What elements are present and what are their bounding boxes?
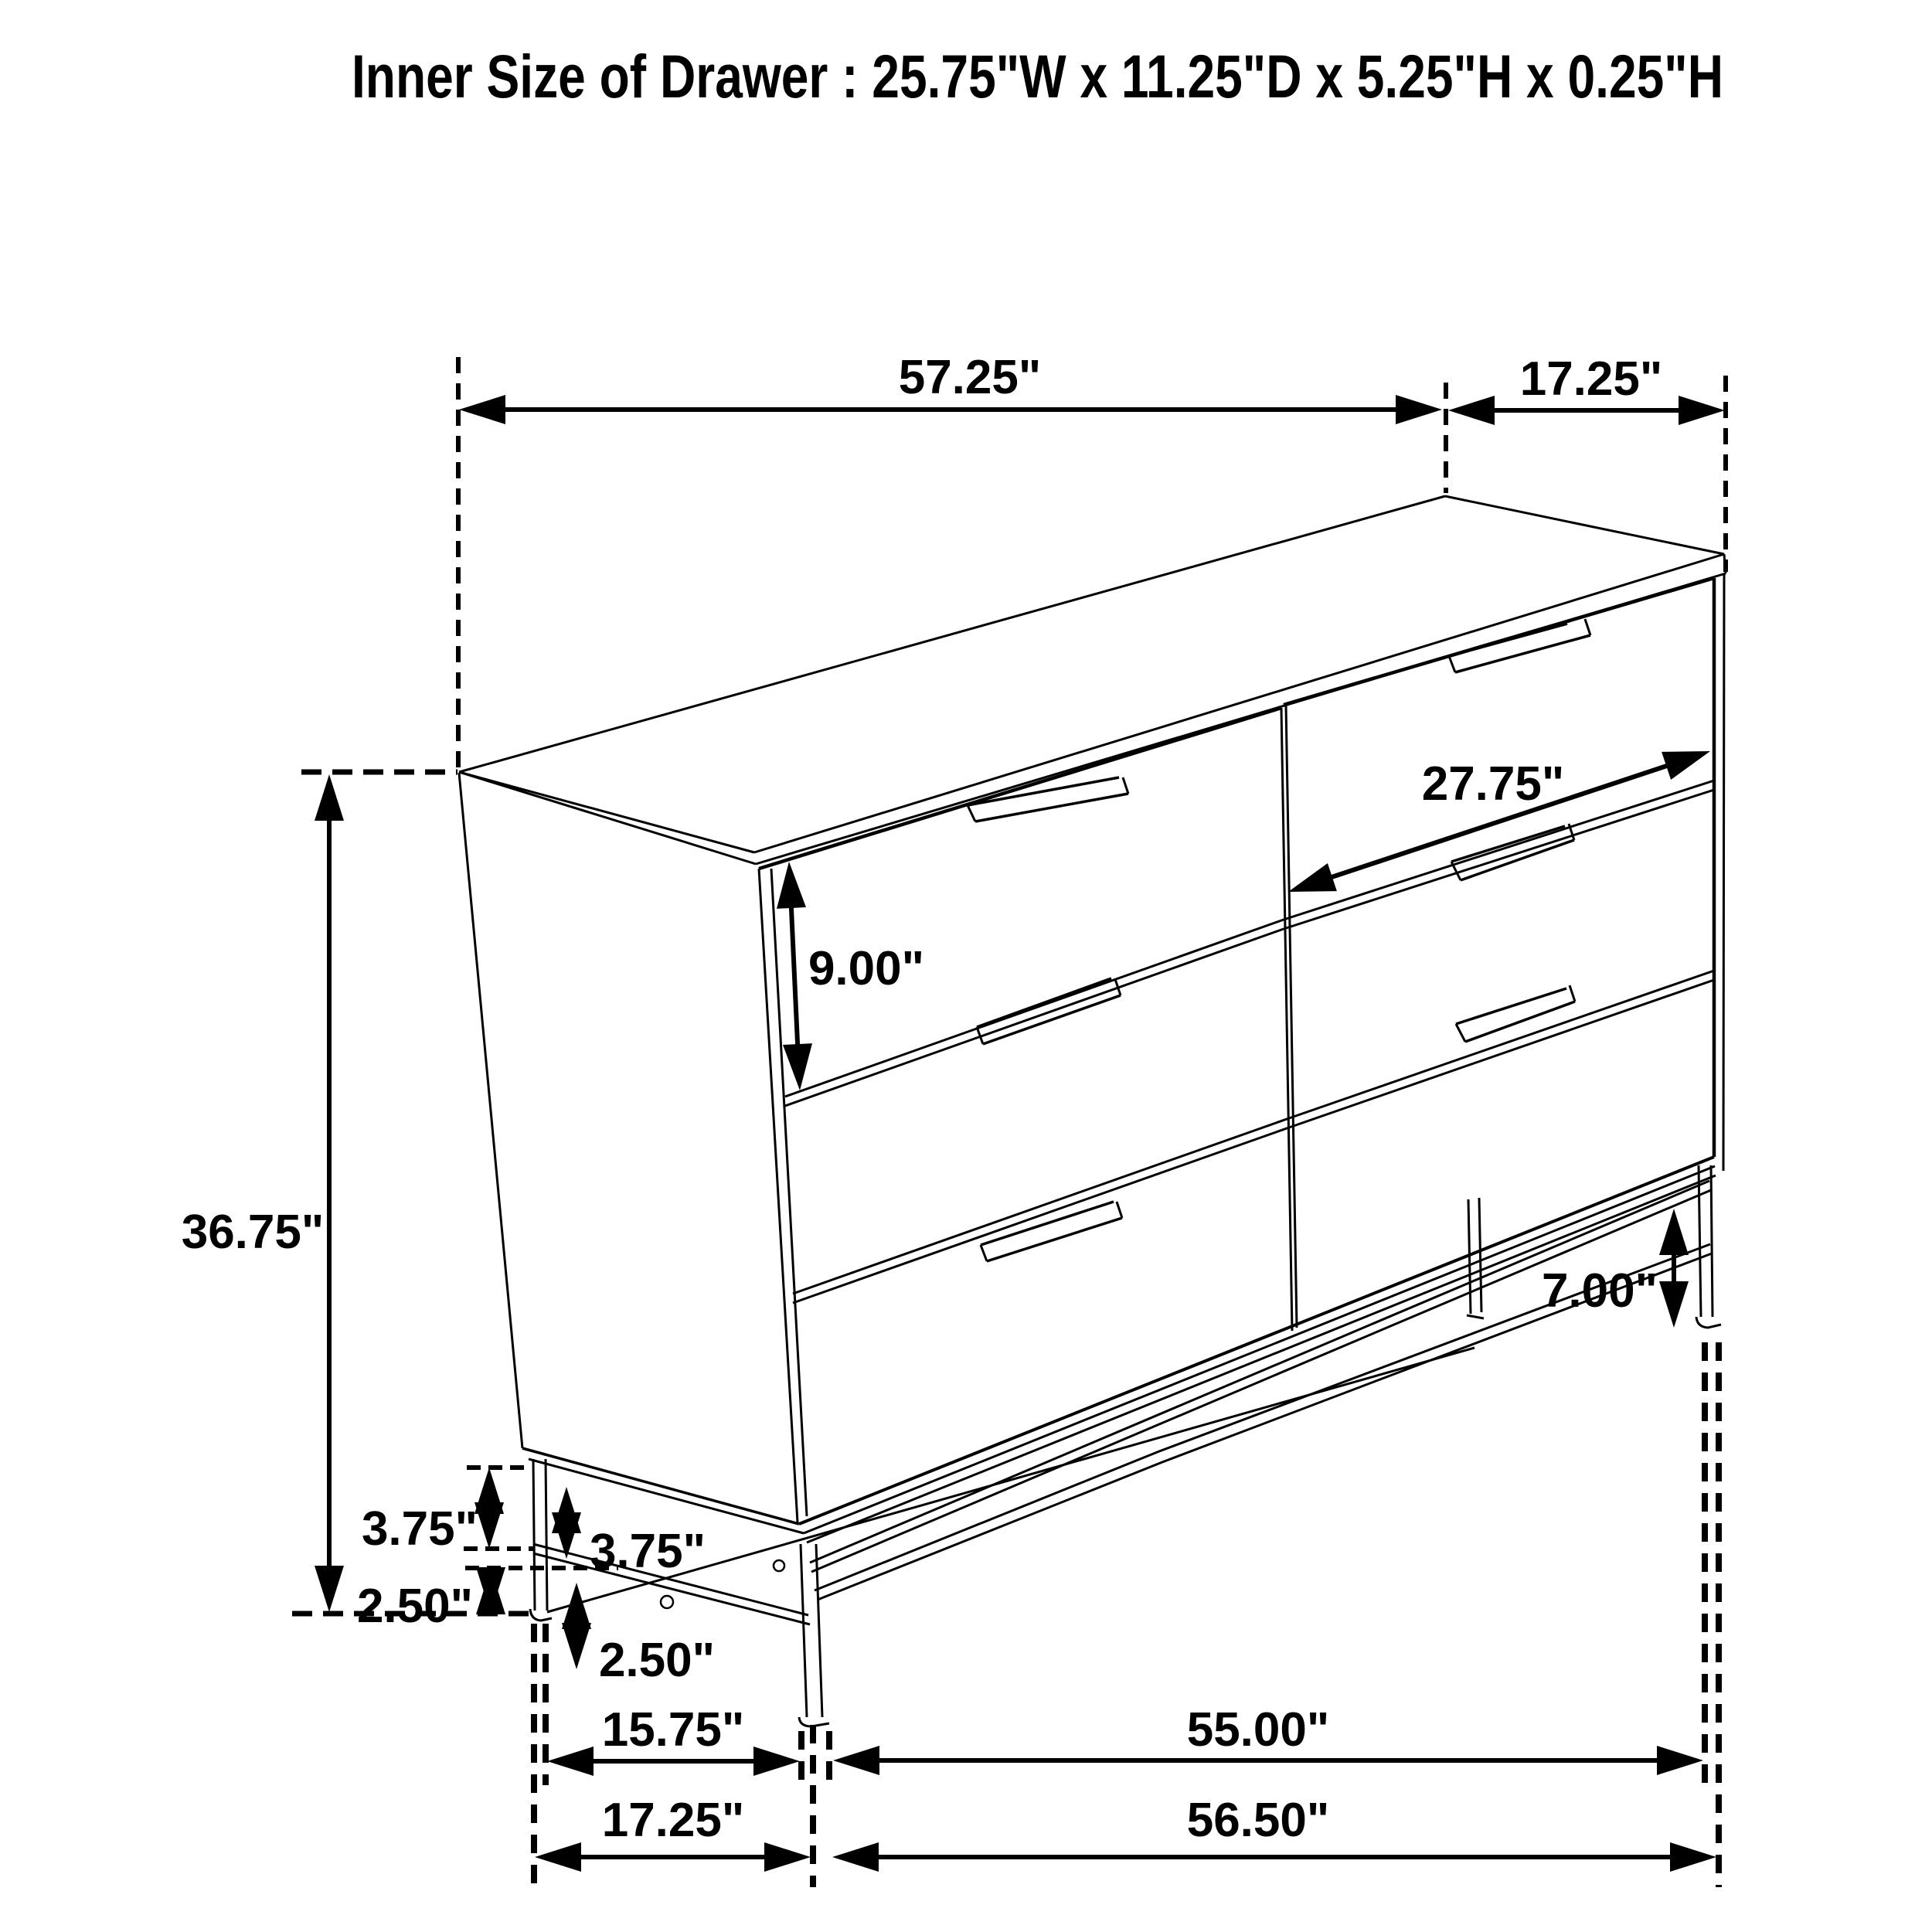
svg-text:17.25": 17.25": [602, 1794, 745, 1847]
svg-text:57.25": 57.25": [899, 351, 1042, 404]
svg-text:55.00": 55.00": [1187, 1703, 1330, 1757]
svg-text:Inner Size of Drawer : 25.75"W: Inner Size of Drawer : 25.75"W x 11.25"D…: [352, 42, 1723, 111]
svg-text:15.75": 15.75": [602, 1703, 745, 1757]
svg-text:17.25": 17.25": [1520, 352, 1663, 406]
svg-text:36.75": 36.75": [182, 1206, 325, 1259]
svg-text:3.75": 3.75": [362, 1502, 478, 1556]
svg-text:3.75": 3.75": [590, 1525, 706, 1578]
svg-text:2.50": 2.50": [357, 1580, 473, 1633]
svg-text:27.75": 27.75": [1422, 757, 1565, 811]
svg-text:7.00": 7.00": [1542, 1264, 1658, 1318]
svg-text:2.50": 2.50": [599, 1634, 715, 1687]
svg-text:9.00": 9.00": [808, 942, 924, 995]
svg-text:56.50": 56.50": [1187, 1794, 1330, 1847]
